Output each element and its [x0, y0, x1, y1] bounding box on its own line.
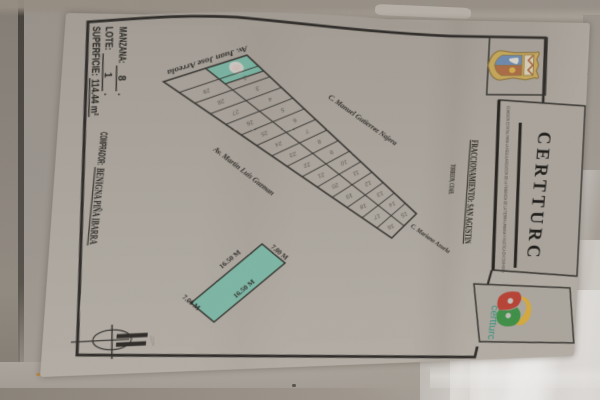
svg-text:8: 8 [115, 75, 127, 82]
svg-text:C. Mariano Azuela: C. Mariano Azuela [409, 224, 451, 256]
svg-text:BENIGNA PIÑA IBARRA: BENIGNA PIÑA IBARRA [86, 168, 107, 245]
svg-text:12: 12 [364, 179, 372, 187]
svg-text:LOTE:: LOTE: [102, 26, 115, 50]
svg-text:19: 19 [345, 191, 353, 199]
svg-text:10: 10 [340, 158, 348, 166]
svg-text:18: 18 [359, 202, 367, 210]
svg-text:6: 6 [292, 116, 297, 123]
svg-text:TORREON, COAH.: TORREON, COAH. [447, 164, 457, 194]
svg-text:9: 9 [329, 148, 334, 155]
svg-text:22: 22 [303, 160, 311, 168]
svg-text:25: 25 [260, 129, 268, 137]
svg-text:29: 29 [202, 86, 210, 94]
svg-text:13: 13 [376, 189, 384, 197]
svg-text:1: 1 [101, 72, 113, 79]
svg-text:20: 20 [331, 181, 339, 189]
svg-text:SUPERFICIE:: SUPERFICIE: [89, 26, 102, 76]
svg-text:5: 5 [280, 106, 285, 113]
svg-text:.: . [101, 93, 113, 96]
svg-text:3: 3 [255, 84, 260, 91]
svg-text:MANZANA:: MANZANA: [116, 27, 129, 64]
svg-text:7: 7 [304, 127, 309, 134]
svg-text:14: 14 [387, 200, 396, 208]
svg-text:FRACCIONAMIENTO: SAN AGUSTIN: FRACCIONAMIENTO: SAN AGUSTIN [462, 140, 480, 244]
svg-text:11: 11 [352, 169, 360, 177]
svg-text:17: 17 [373, 212, 381, 220]
svg-text:2: 2 [242, 74, 247, 81]
svg-text:16: 16 [387, 222, 395, 230]
svg-text:24: 24 [273, 139, 282, 147]
svg-text:27: 27 [231, 108, 239, 116]
svg-text:8: 8 [317, 137, 322, 144]
svg-text:COMPRADOR:: COMPRADOR: [95, 132, 109, 165]
svg-text:26: 26 [245, 118, 253, 126]
svg-text:4: 4 [266, 95, 272, 102]
svg-text:15: 15 [400, 210, 408, 218]
svg-text:28: 28 [216, 97, 224, 105]
svg-text:21: 21 [317, 171, 325, 179]
svg-text:.: . [115, 93, 127, 96]
svg-text:23: 23 [288, 150, 296, 158]
